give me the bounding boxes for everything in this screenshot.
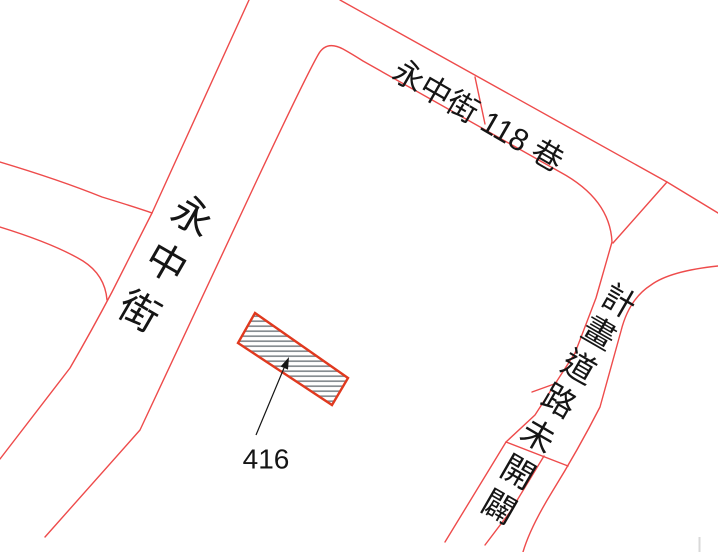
cadastral-map-canvas[interactable]: 416 永 中 街 永中街 118 巷 計 畫 道 路 未 開 闢: [0, 0, 718, 552]
parcel-number-label: 416: [243, 444, 290, 475]
map-background: [0, 0, 718, 552]
